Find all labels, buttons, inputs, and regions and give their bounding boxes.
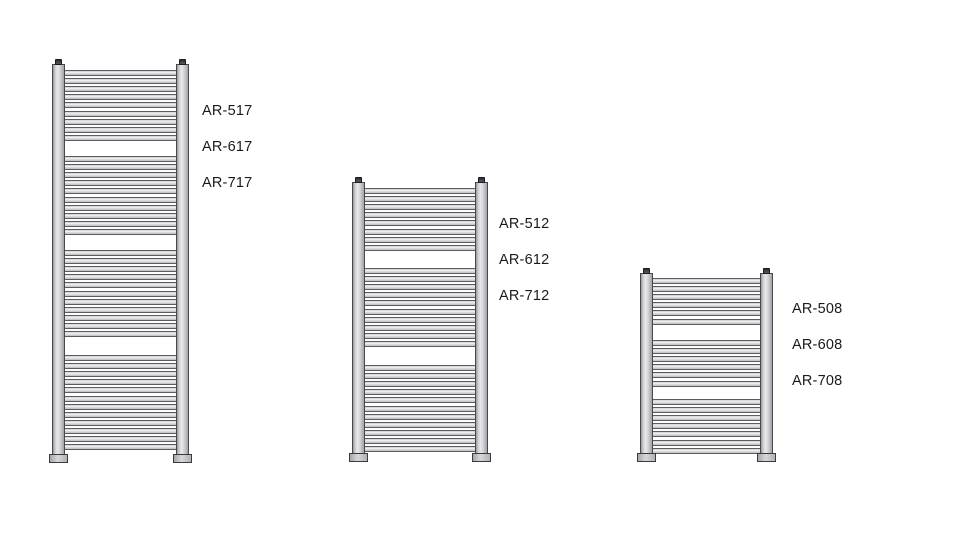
towel-bar <box>363 422 477 428</box>
towel-bar <box>63 387 178 393</box>
towel-bar <box>651 364 762 370</box>
right-rail <box>176 64 189 462</box>
towel-bar <box>63 213 178 219</box>
towel-bar <box>651 302 762 308</box>
towel-bar <box>63 78 178 84</box>
towel-bar <box>651 356 762 362</box>
towel-bar <box>63 396 178 402</box>
towel-bar <box>651 448 762 454</box>
towel-bar <box>63 291 178 297</box>
model-label: AR-708 <box>792 374 842 389</box>
radiator-tall-drawing <box>52 64 189 462</box>
towel-bar <box>63 266 178 272</box>
towel-bar <box>363 333 477 339</box>
towel-bar <box>63 282 178 288</box>
towel-bar <box>63 135 178 141</box>
left-rail <box>352 182 365 461</box>
left-foot <box>349 453 368 462</box>
towel-bar <box>63 274 178 280</box>
right-rail <box>475 182 488 461</box>
towel-bar <box>363 438 477 444</box>
towel-bar <box>63 180 178 186</box>
towel-bar <box>363 188 477 194</box>
towel-bar <box>651 431 762 437</box>
towel-bar <box>63 412 178 418</box>
model-label: AR-608 <box>792 338 842 353</box>
model-label: AR-508 <box>792 302 842 317</box>
towel-bar <box>63 258 178 264</box>
towel-bar <box>63 250 178 256</box>
towel-bar <box>363 309 477 315</box>
model-label: AR-712 <box>499 289 549 304</box>
towel-bar <box>63 307 178 313</box>
towel-bar <box>651 278 762 284</box>
right-vent-cap-icon <box>179 59 186 65</box>
towel-bar <box>63 164 178 170</box>
towel-bar <box>363 430 477 436</box>
towel-bar <box>63 102 178 108</box>
towel-bar <box>363 237 477 243</box>
towel-bar <box>363 446 477 452</box>
towel-bar <box>63 420 178 426</box>
towel-bar <box>63 404 178 410</box>
towel-bar <box>63 94 178 100</box>
right-foot <box>173 454 192 463</box>
towel-bar <box>363 220 477 226</box>
right-foot <box>757 453 776 462</box>
model-label: AR-612 <box>499 253 549 268</box>
towel-bar <box>363 245 477 251</box>
radiator-medium-drawing <box>352 182 488 461</box>
towel-bar <box>651 440 762 446</box>
towel-bar <box>363 204 477 210</box>
towel-bar <box>363 317 477 323</box>
left-foot <box>49 454 68 463</box>
towel-bar <box>651 399 762 405</box>
towel-bar <box>63 221 178 227</box>
towel-bar <box>63 156 178 162</box>
towel-bar <box>63 119 178 125</box>
towel-bar <box>651 319 762 325</box>
towel-bar <box>63 188 178 194</box>
left-vent-cap-icon <box>643 268 650 274</box>
towel-bar <box>63 379 178 385</box>
right-foot <box>472 453 491 462</box>
towel-bar <box>363 284 477 290</box>
towel-bar <box>63 436 178 442</box>
towel-bar <box>363 212 477 218</box>
radiator-size-diagram: AR-517AR-617AR-717AR-512AR-612AR-712AR-5… <box>0 0 961 533</box>
towel-bar <box>363 300 477 306</box>
towel-bar <box>63 111 178 117</box>
towel-bar <box>63 70 178 76</box>
towel-bar <box>363 341 477 347</box>
towel-bar <box>363 365 477 371</box>
radiator-short-drawing <box>640 273 773 461</box>
towel-bar <box>63 127 178 133</box>
towel-bar <box>363 325 477 331</box>
towel-bar <box>63 444 178 450</box>
towel-bar <box>651 407 762 413</box>
towel-bar <box>363 229 477 235</box>
towel-bar <box>651 294 762 300</box>
left-vent-cap-icon <box>55 59 62 65</box>
towel-bar <box>63 197 178 203</box>
left-foot <box>637 453 656 462</box>
towel-bar <box>363 196 477 202</box>
towel-bar <box>363 292 477 298</box>
towel-bar <box>63 299 178 305</box>
model-label: AR-517 <box>202 104 252 119</box>
towel-bar <box>651 340 762 346</box>
towel-bar <box>363 373 477 379</box>
model-label: AR-512 <box>499 217 549 232</box>
towel-bar <box>363 268 477 274</box>
towel-bar <box>363 381 477 387</box>
towel-bar <box>651 423 762 429</box>
left-rail <box>640 273 653 461</box>
towel-bar <box>63 86 178 92</box>
towel-bar <box>651 348 762 354</box>
right-rail <box>760 273 773 461</box>
towel-bar <box>63 315 178 321</box>
towel-bar <box>651 415 762 421</box>
right-vent-cap-icon <box>478 177 485 183</box>
towel-bar <box>363 406 477 412</box>
towel-bar <box>63 371 178 377</box>
left-rail <box>52 64 65 462</box>
right-vent-cap-icon <box>763 268 770 274</box>
towel-bar <box>63 363 178 369</box>
towel-bar <box>63 428 178 434</box>
towel-bar <box>651 381 762 387</box>
towel-bar <box>63 331 178 337</box>
towel-bar <box>63 205 178 211</box>
towel-bar <box>363 414 477 420</box>
towel-bar <box>63 172 178 178</box>
towel-bar <box>363 389 477 395</box>
towel-bar <box>651 372 762 378</box>
towel-bar <box>63 355 178 361</box>
towel-bar <box>651 310 762 316</box>
towel-bar <box>363 276 477 282</box>
left-vent-cap-icon <box>355 177 362 183</box>
towel-bar <box>651 286 762 292</box>
towel-bar <box>63 229 178 235</box>
towel-bar <box>363 397 477 403</box>
towel-bar <box>63 323 178 329</box>
model-label: AR-617 <box>202 140 252 155</box>
model-label: AR-717 <box>202 176 252 191</box>
